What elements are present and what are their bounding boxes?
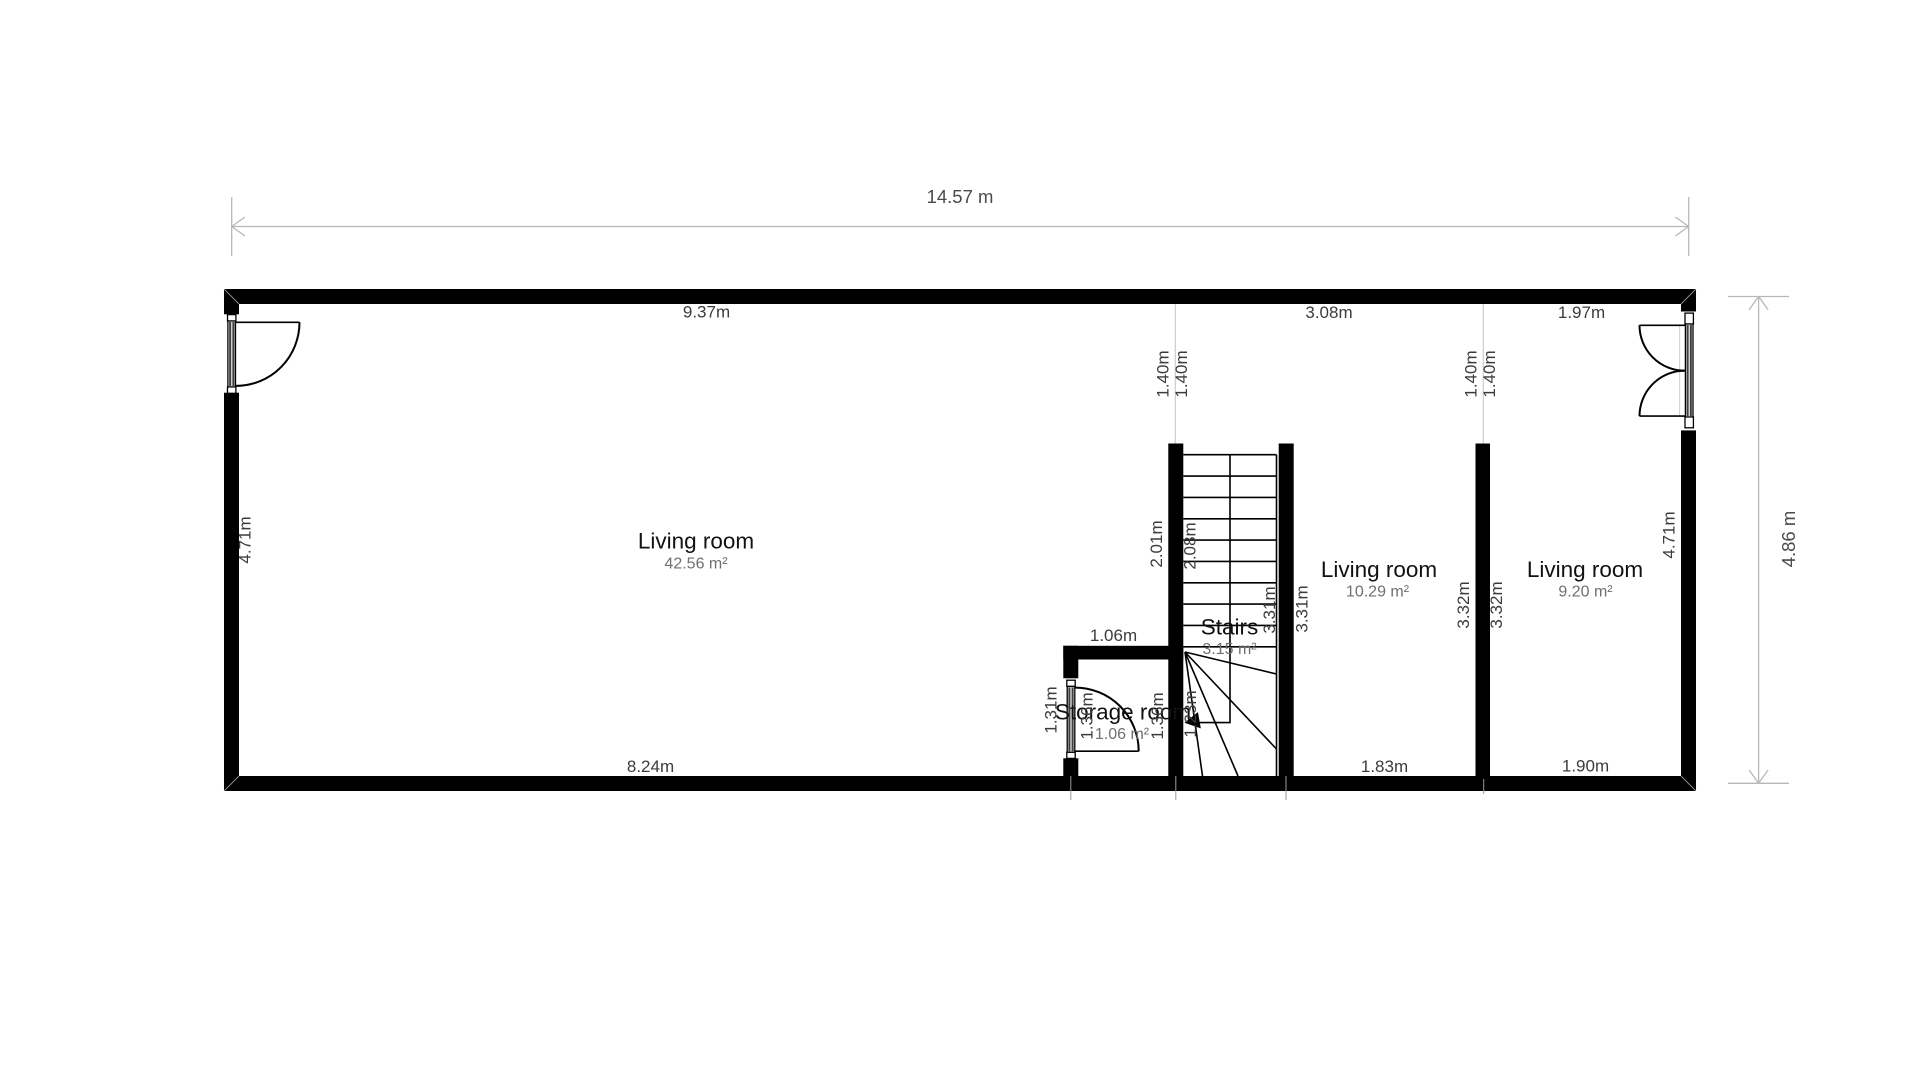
- svg-text:1.06 m²: 1.06 m²: [1095, 726, 1150, 743]
- svg-text:1.31m: 1.31m: [1042, 686, 1061, 733]
- svg-text:42.56 m²: 42.56 m²: [664, 556, 728, 573]
- svg-text:9.20 m²: 9.20 m²: [1558, 584, 1613, 601]
- svg-text:4.86 m: 4.86 m: [1778, 511, 1799, 568]
- svg-text:1.06m: 1.06m: [1090, 626, 1137, 645]
- svg-text:3.31m: 3.31m: [1293, 585, 1312, 632]
- svg-text:3.15 m²: 3.15 m²: [1202, 641, 1257, 658]
- svg-text:Living room: Living room: [1527, 557, 1643, 582]
- svg-text:Living room: Living room: [638, 529, 754, 554]
- svg-text:Storage room: Storage room: [1055, 700, 1191, 725]
- svg-text:1.40m: 1.40m: [1154, 350, 1173, 397]
- svg-text:1.40m: 1.40m: [1462, 350, 1481, 397]
- svg-text:Living room: Living room: [1321, 557, 1437, 582]
- svg-text:1.40m: 1.40m: [1172, 350, 1191, 397]
- svg-text:3.31m: 3.31m: [1260, 586, 1279, 633]
- svg-text:1.83m: 1.83m: [1361, 757, 1408, 776]
- svg-text:2.08m: 2.08m: [1181, 522, 1200, 569]
- svg-text:2.01m: 2.01m: [1147, 520, 1166, 567]
- svg-text:1.40m: 1.40m: [1480, 350, 1499, 397]
- svg-text:8.24m: 8.24m: [627, 757, 674, 776]
- svg-text:4.71m: 4.71m: [1660, 511, 1679, 558]
- svg-text:1.90m: 1.90m: [1562, 757, 1609, 776]
- svg-text:3.08m: 3.08m: [1305, 303, 1352, 322]
- svg-text:14.57 m: 14.57 m: [927, 186, 994, 207]
- svg-text:4.71m: 4.71m: [236, 516, 255, 563]
- svg-text:1.97m: 1.97m: [1558, 303, 1605, 322]
- svg-text:10.29 m²: 10.29 m²: [1346, 584, 1410, 601]
- svg-text:Stairs: Stairs: [1201, 615, 1259, 640]
- svg-text:1.36m: 1.36m: [1078, 692, 1097, 739]
- svg-text:3.32m: 3.32m: [1454, 581, 1473, 628]
- svg-text:3.32m: 3.32m: [1487, 581, 1506, 628]
- svg-text:1.36m: 1.36m: [1148, 692, 1167, 739]
- svg-text:1.23m: 1.23m: [1181, 690, 1200, 737]
- svg-text:9.37m: 9.37m: [683, 303, 730, 322]
